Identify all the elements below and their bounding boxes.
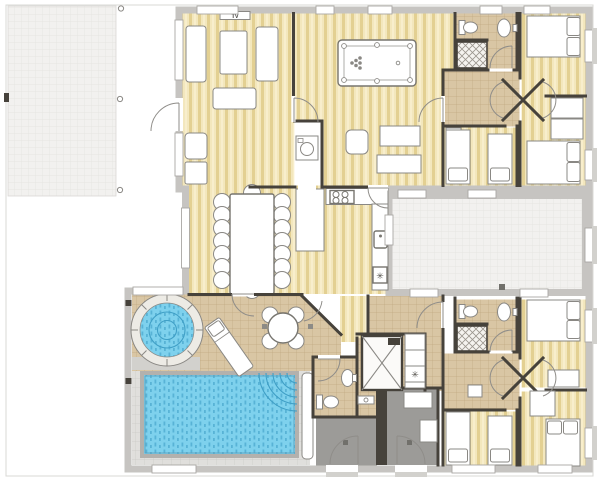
pillow [567,302,580,320]
tap [353,375,357,382]
patio-post [118,6,123,11]
appliance [405,350,425,366]
appliance [405,334,425,350]
floor-plan-canvas: TV [0,0,600,481]
floor-drain [343,440,348,445]
pillow [567,163,580,182]
jacuzzi [131,294,203,366]
armchair [185,133,207,159]
table [377,155,421,173]
shower [457,326,487,351]
utility-closet [296,136,318,160]
toilet-tank [317,395,323,409]
appliance [420,420,437,442]
wardrobe [548,370,579,387]
armchair [346,130,368,154]
pillow [567,18,580,36]
wall-fitting [308,324,313,329]
patio [4,6,124,196]
sink [342,370,354,387]
wardrobe [551,119,583,139]
wall-sink [358,396,374,404]
pillow [567,38,580,56]
shower [457,42,487,68]
patio-post [117,96,122,101]
side-table [185,162,207,184]
utility-column: ✳ [405,334,425,388]
toilet [464,306,478,317]
pillow [491,449,510,462]
terrace-table-set [262,307,304,349]
courtyard [389,196,586,293]
faucet [379,235,382,238]
tv-label: TV [231,14,238,20]
appliance [405,382,425,388]
toilet [464,22,478,33]
boundary-marker [4,93,9,102]
radiator [302,373,313,459]
patio-post [117,187,122,192]
sink [498,19,511,37]
coffee-table [213,88,256,109]
pillow [449,168,468,181]
dining-table [230,194,274,294]
floor-drain [407,440,412,445]
wall-fitting [126,300,132,306]
sofa [186,26,206,82]
wall-fitting [126,378,132,384]
tap [513,309,517,316]
pillow [449,449,468,462]
bedroom-4 [527,300,580,341]
freezer-icon: ✳ [376,272,384,282]
pillow [564,421,578,434]
nightstand [468,385,482,397]
pillow [491,168,510,181]
hall-sink [358,396,374,404]
courtyard-drain [499,284,505,290]
tap [513,25,517,32]
sauna [362,336,402,390]
hall-north-floor [445,72,520,127]
pillow [567,143,580,162]
floor-plan: TV [0,0,600,481]
pool-area [126,294,314,459]
dining-room [214,185,291,299]
pillow [548,421,562,434]
swimming-pool [142,373,297,456]
sauna-heater [388,338,400,345]
appliance [404,392,432,408]
dresser [530,391,555,416]
hall-central-floor [368,296,443,338]
round-table [268,313,298,343]
wall-fitting [262,324,267,329]
washing-machine [296,136,318,160]
entry-door [151,103,179,131]
pillow [567,321,580,339]
kitchen-island [296,189,324,251]
sink [498,303,511,321]
toilet [324,396,339,408]
freezer-icon: ✳ [411,371,419,381]
sofa [256,27,278,81]
bedroom-1 [527,16,580,57]
table [220,31,247,74]
desk [380,126,420,146]
